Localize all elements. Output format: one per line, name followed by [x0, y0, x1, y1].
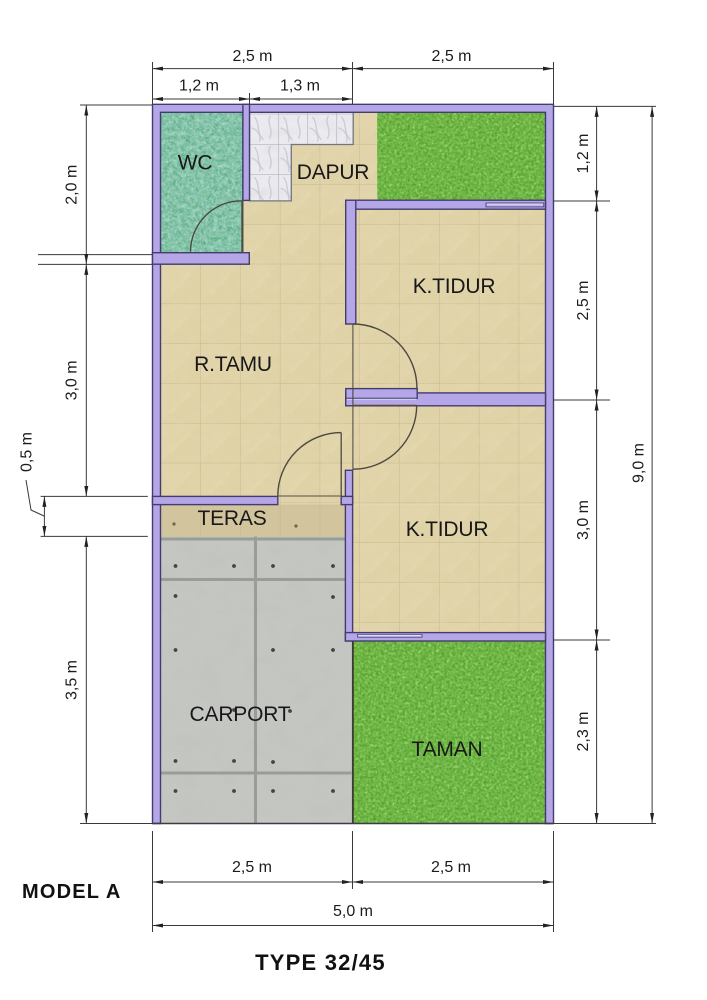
svg-text:TYPE 32/45: TYPE 32/45: [255, 950, 386, 975]
svg-text:2,3 m: 2,3 m: [575, 711, 592, 751]
svg-text:1,2 m: 1,2 m: [575, 133, 592, 173]
svg-text:2,5 m: 2,5 m: [431, 859, 471, 876]
svg-text:2,5 m: 2,5 m: [232, 859, 272, 876]
svg-text:2,5 m: 2,5 m: [232, 48, 272, 65]
svg-text:2,0 m: 2,0 m: [64, 165, 81, 205]
svg-text:0,5 m: 0,5 m: [19, 432, 36, 472]
svg-text:K.TIDUR: K.TIDUR: [413, 275, 496, 298]
svg-text:2,5 m: 2,5 m: [431, 48, 471, 65]
svg-text:MODEL A: MODEL A: [22, 881, 122, 903]
svg-text:CARPORT: CARPORT: [190, 703, 291, 726]
svg-text:3,5 m: 3,5 m: [64, 660, 81, 700]
svg-text:3,0 m: 3,0 m: [575, 500, 592, 540]
svg-text:3,0 m: 3,0 m: [64, 360, 81, 400]
svg-text:K.TIDUR: K.TIDUR: [406, 518, 489, 541]
svg-text:9,0 m: 9,0 m: [630, 443, 647, 483]
svg-text:2,5 m: 2,5 m: [575, 280, 592, 320]
svg-text:1,3 m: 1,3 m: [280, 78, 320, 95]
svg-text:5,0 m: 5,0 m: [333, 903, 373, 920]
svg-text:R.TAMU: R.TAMU: [194, 353, 272, 376]
svg-text:1,2 m: 1,2 m: [179, 78, 219, 95]
svg-text:DAPUR: DAPUR: [297, 161, 370, 184]
svg-text:TERAS: TERAS: [197, 507, 266, 530]
svg-text:WC: WC: [178, 152, 213, 175]
svg-text:TAMAN: TAMAN: [412, 738, 483, 761]
